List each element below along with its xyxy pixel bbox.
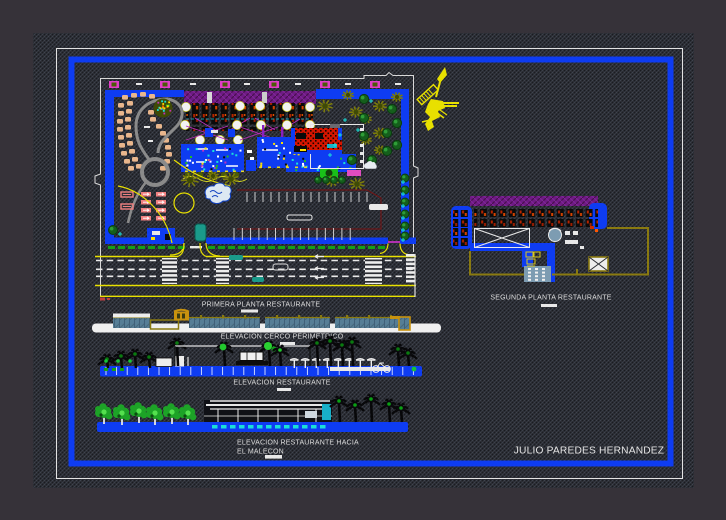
svg-text:EL MALECON: EL MALECON xyxy=(237,449,284,456)
svg-text:ELEVACION RESTAURANTE HACIA: ELEVACION RESTAURANTE HACIA xyxy=(237,440,359,447)
svg-text:PRIMERA PLANTA RESTAURANTE: PRIMERA PLANTA RESTAURANTE xyxy=(202,302,321,309)
svg-text:JULIO PAREDES HERNANDEZ: JULIO PAREDES HERNANDEZ xyxy=(514,446,664,457)
svg-text:ELEVACION RESTAURANTE: ELEVACION RESTAURANTE xyxy=(233,380,330,387)
svg-text:SEGUNDA PLANTA RESTAURANTE: SEGUNDA PLANTA RESTAURANTE xyxy=(490,295,611,302)
